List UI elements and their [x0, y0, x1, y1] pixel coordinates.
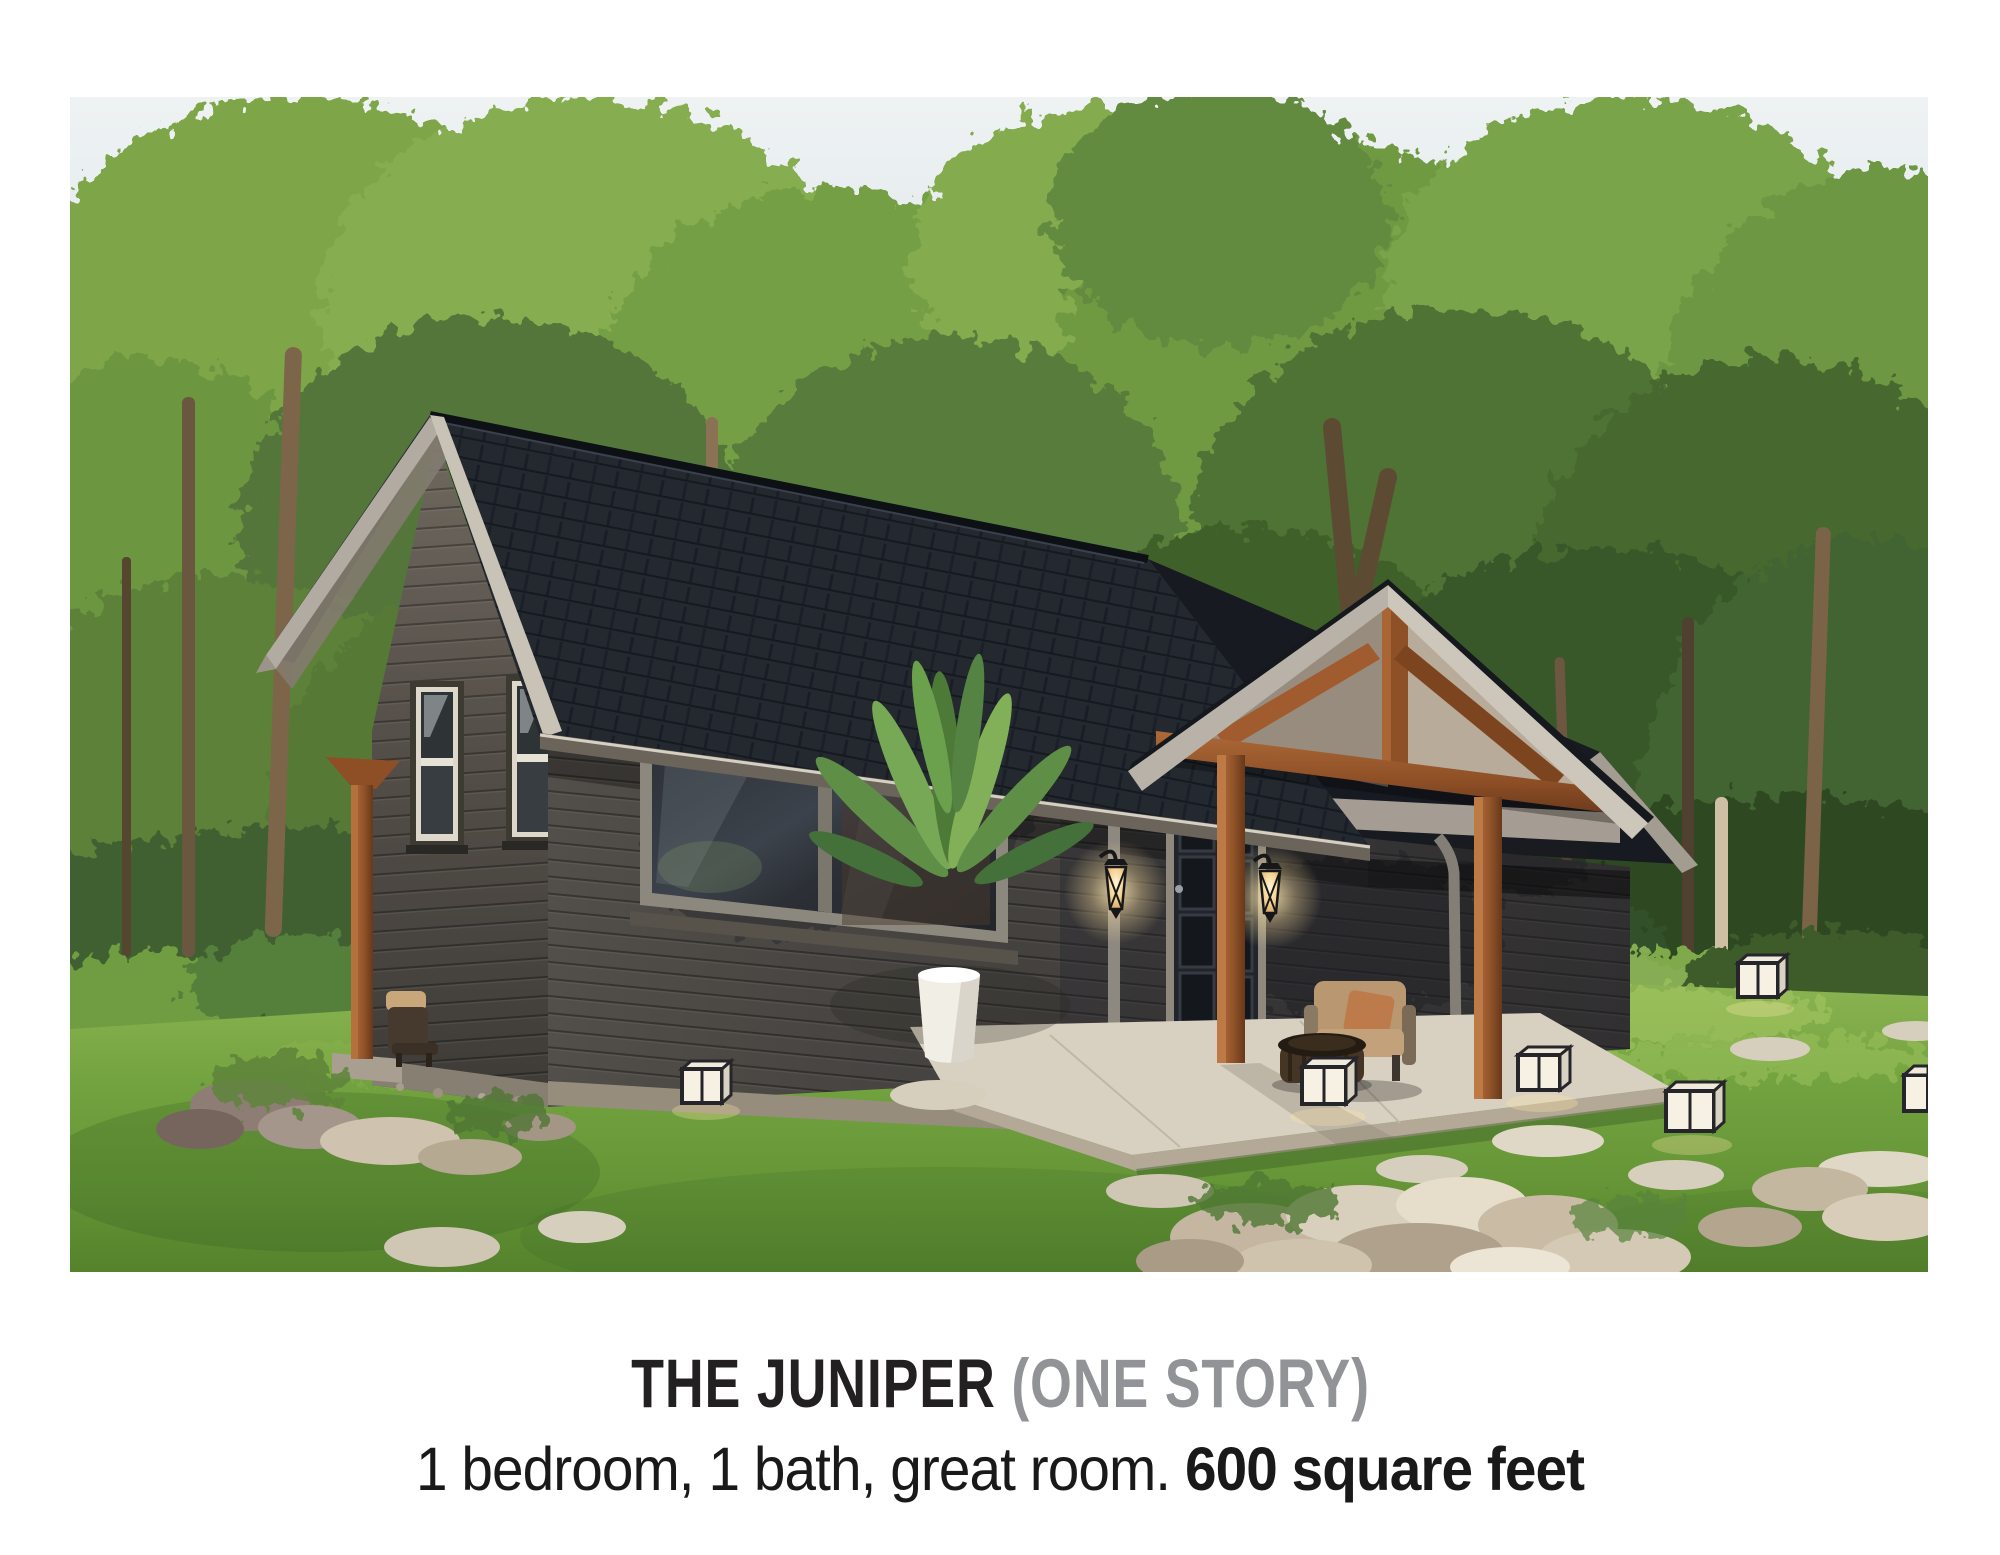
cabin-render-svg [70, 97, 1928, 1272]
cabin-photo [70, 97, 1928, 1272]
cube-light [1904, 1066, 1928, 1111]
cube-light [672, 1061, 740, 1120]
cube-light [1726, 955, 1794, 1017]
cube-light [1652, 1082, 1732, 1155]
plan-title-qualifier: (ONE STORY) [995, 1345, 1369, 1422]
porch-post-front [1217, 755, 1245, 1063]
cube-light [1506, 1047, 1578, 1112]
porch-sconce-left [1064, 840, 1168, 944]
porch-post-right [1474, 797, 1502, 1099]
plan-description-text: 1 bedroom, 1 bath, great room. [416, 1435, 1185, 1503]
caption: THE JUNIPER (ONE STORY) 1 bedroom, 1 bat… [0, 1348, 2000, 1501]
plan-description: 1 bedroom, 1 bath, great room. 600 squar… [0, 1437, 2000, 1501]
plan-title: THE JUNIPER (ONE STORY) [0, 1348, 2000, 1420]
cube-light [1290, 1058, 1366, 1126]
left-window-1 [406, 681, 468, 854]
plan-title-name: THE JUNIPER [631, 1345, 995, 1422]
plan-square-footage: 600 square feet [1185, 1435, 1584, 1503]
